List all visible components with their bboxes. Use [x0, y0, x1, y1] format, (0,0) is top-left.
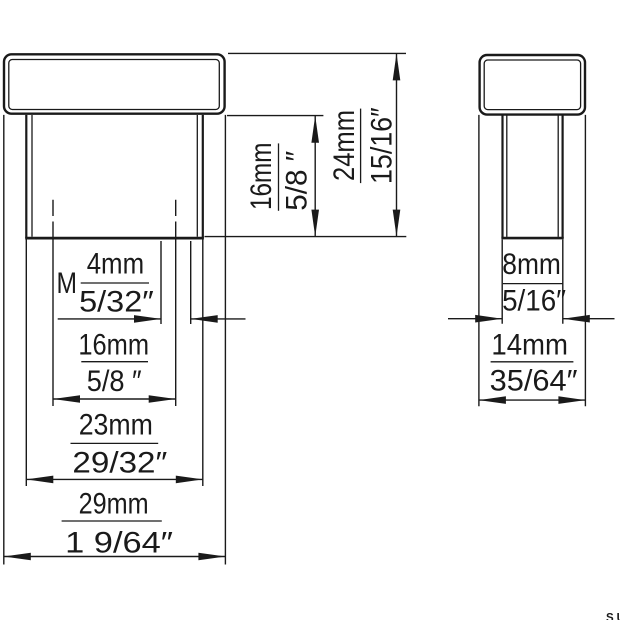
svg-text:14mm: 14mm [491, 328, 568, 361]
svg-text:23mm: 23mm [79, 409, 153, 442]
svg-text:24mm: 24mm [328, 110, 361, 181]
svg-text:35/64″: 35/64″ [490, 365, 578, 398]
svg-text:M: M [57, 267, 78, 300]
svg-text:5/32″: 5/32″ [79, 286, 154, 319]
svg-text:SU: SU [606, 613, 620, 620]
svg-text:5/8 ″: 5/8 ″ [281, 150, 314, 210]
svg-text:5/8 ″: 5/8 ″ [87, 365, 142, 398]
svg-text:4mm: 4mm [87, 248, 144, 281]
svg-text:1 9/64″: 1 9/64″ [65, 526, 173, 559]
svg-text:5/16″: 5/16″ [502, 284, 566, 317]
svg-text:16mm: 16mm [78, 329, 149, 362]
svg-text:15/16″: 15/16″ [365, 107, 398, 184]
svg-text:16mm: 16mm [245, 143, 278, 211]
svg-text:29mm: 29mm [79, 488, 149, 521]
svg-text:8mm: 8mm [502, 248, 561, 281]
svg-text:29/32″: 29/32″ [72, 447, 167, 480]
